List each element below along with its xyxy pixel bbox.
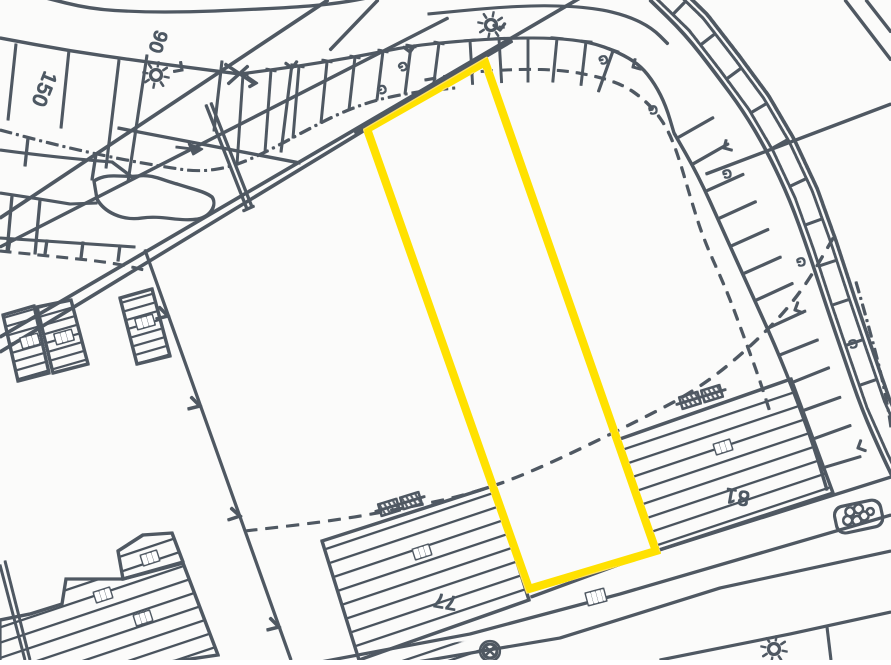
svg-text:77: 77 [431, 588, 459, 614]
svg-text:81: 81 [722, 483, 751, 510]
